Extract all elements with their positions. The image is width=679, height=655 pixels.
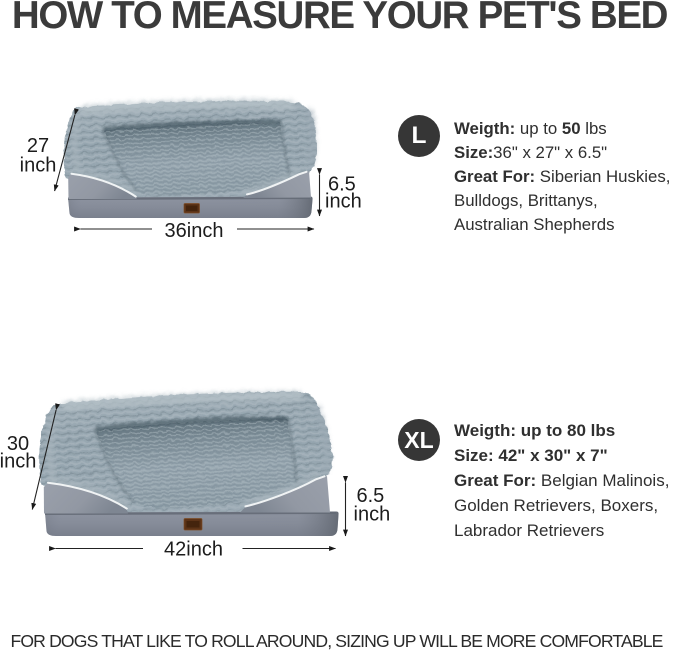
svg-text:inch: inch (20, 155, 57, 177)
svg-text:inch: inch (354, 504, 391, 526)
svg-text:inch: inch (325, 191, 362, 213)
svg-text:36inch: 36inch (165, 220, 224, 242)
svg-text:inch: inch (0, 451, 36, 473)
svg-text:42inch: 42inch (164, 539, 223, 561)
